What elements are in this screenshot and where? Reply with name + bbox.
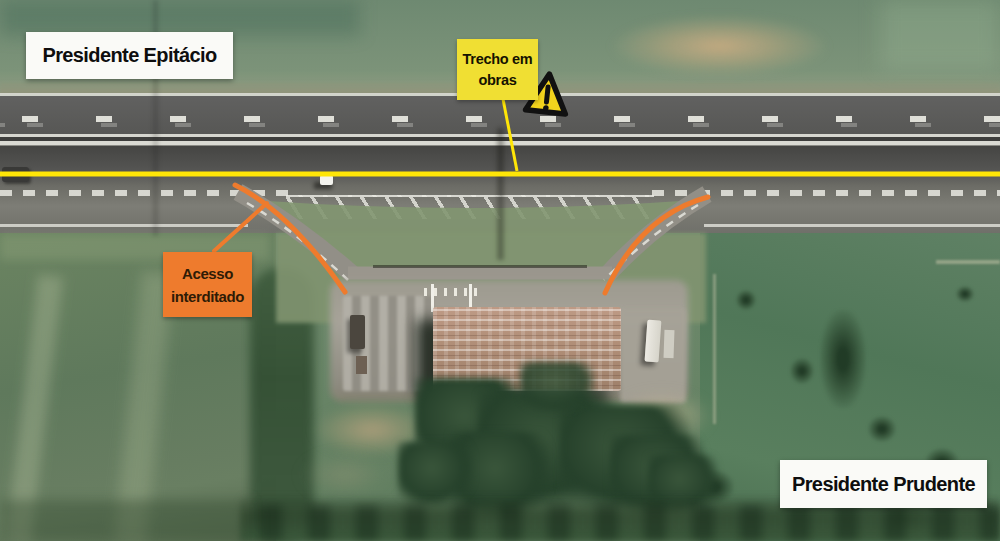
bottom-bush-texture (260, 505, 1000, 541)
crate (356, 356, 367, 374)
pasture-bottom-shade (0, 500, 250, 541)
city-label-text: Presidente Prudente (792, 473, 975, 496)
city-label-text: Presidente Epitácio (42, 44, 216, 67)
roadworks-text-line2: obras (479, 70, 517, 91)
tree-cluster (520, 362, 595, 412)
roadworks-text-line1: Trecho em (463, 49, 533, 70)
label-presidente-epitacio: Presidente Epitácio (26, 32, 233, 79)
parked-truck-dark (350, 315, 365, 349)
label-roadworks: Trecho em obras (457, 39, 538, 100)
fence-shadow-line (373, 265, 587, 268)
closed-access-text-line1: Acesso (182, 262, 233, 285)
parked-trailer (664, 330, 675, 358)
label-presidente-prudente: Presidente Prudente (780, 460, 987, 508)
parked-truck-white (645, 320, 662, 363)
closed-access-text-line2: interditado (171, 285, 244, 308)
label-closed-access: Acesso interditado (163, 252, 252, 317)
annotated-satellite-image: Presidente Epitácio Trecho em obras Aces… (0, 0, 1000, 541)
dirt-patch (300, 455, 390, 495)
pole-shadow (497, 128, 504, 260)
